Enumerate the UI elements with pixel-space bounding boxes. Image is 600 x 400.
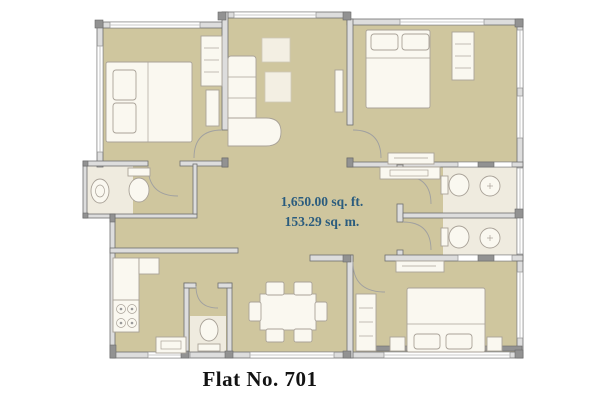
toilet-tank [441, 176, 448, 194]
bedroom2-pillow [402, 34, 429, 50]
bedroom1-side-unit [206, 90, 219, 126]
stove [113, 300, 139, 332]
toilet [449, 226, 469, 248]
bedroom1-wardrobe [201, 36, 222, 86]
bedroom3-side-table [487, 337, 502, 351]
bedroom2-pillow [371, 34, 398, 50]
dining-chair [249, 302, 261, 321]
bedroom3-side-table [390, 337, 405, 351]
dining-chair [315, 302, 327, 321]
bedroom3-pillow [414, 334, 440, 349]
dining-chair [294, 329, 312, 342]
floor-plan-page: 1,650.00 sq. ft. 153.29 sq. m. Flat No. … [0, 0, 600, 400]
tv-unit [335, 70, 343, 112]
dining-chair [266, 282, 284, 295]
sofa-chaise [228, 118, 281, 146]
area-sqft: 1,650.00 sq. ft. [242, 192, 402, 212]
bedroom1-pillow [113, 103, 136, 133]
bedroom3-dresser [396, 261, 444, 272]
bedroom2-dresser [388, 153, 434, 164]
area-annotation: 1,650.00 sq. ft. 153.29 sq. m. [242, 192, 402, 231]
kitchen-counter [139, 258, 159, 274]
toilet-tank [441, 228, 448, 246]
flat-caption: Flat No. 701 [0, 367, 520, 392]
living-rug [265, 72, 291, 102]
area-sqm: 153.29 sq. m. [242, 212, 402, 232]
bedroom3-pillow [446, 334, 472, 349]
toilet-tank [128, 168, 150, 176]
bedroom1-pillow [113, 70, 136, 100]
toilet [200, 319, 218, 341]
dining-chair [294, 282, 312, 295]
living-table [262, 38, 290, 62]
washbasin [91, 179, 109, 203]
sofa-back [228, 56, 256, 120]
wc-fixtures [198, 319, 220, 351]
bedroom3-wardrobe [356, 294, 376, 351]
toilet-tank [198, 344, 220, 351]
hall-furniture [380, 167, 440, 179]
kitchen-sink [156, 337, 186, 353]
dining-chair [266, 329, 284, 342]
dining-table [260, 294, 316, 330]
hall-console [380, 167, 440, 179]
toilet [129, 178, 149, 202]
toilet [449, 174, 469, 196]
